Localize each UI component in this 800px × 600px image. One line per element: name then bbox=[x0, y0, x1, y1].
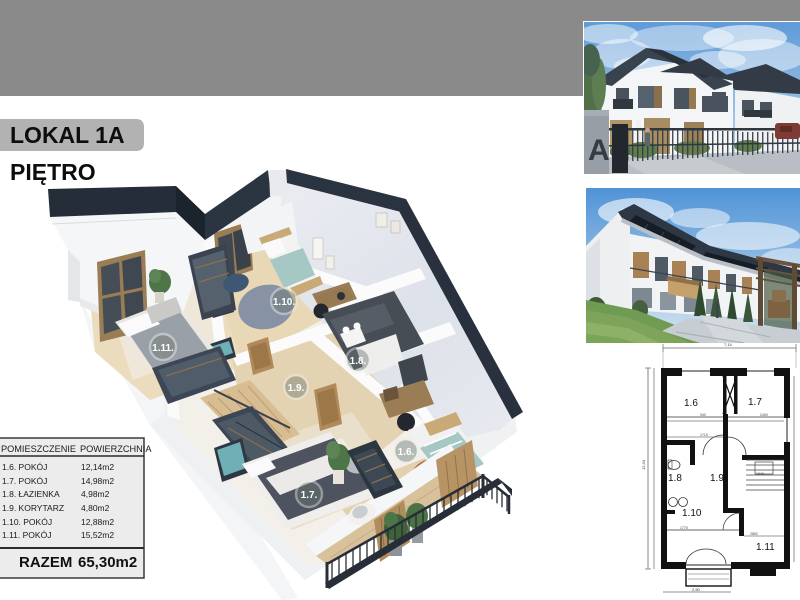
svg-text:1840: 1840 bbox=[756, 472, 764, 476]
svg-text:1.11: 1.11 bbox=[756, 542, 775, 553]
svg-text:1.9: 1.9 bbox=[710, 473, 724, 484]
svg-text:1.8.: 1.8. bbox=[350, 356, 367, 367]
svg-text:4,80m2: 4,80m2 bbox=[81, 503, 110, 513]
svg-text:1.6. POKÓJ: 1.6. POKÓJ bbox=[2, 462, 47, 472]
svg-text:12,14m2: 12,14m2 bbox=[81, 462, 114, 472]
svg-text:1.9.: 1.9. bbox=[288, 383, 305, 394]
svg-text:A: A bbox=[588, 134, 610, 167]
svg-text:1.11. POKÓJ: 1.11. POKÓJ bbox=[2, 530, 51, 540]
svg-text:1.10. POKÓJ: 1.10. POKÓJ bbox=[2, 517, 52, 527]
svg-text:65,30m2: 65,30m2 bbox=[78, 554, 137, 571]
svg-text:1.6.: 1.6. bbox=[398, 447, 415, 458]
svg-text:1.7. POKÓJ: 1.7. POKÓJ bbox=[2, 476, 47, 486]
svg-text:12,34: 12,34 bbox=[641, 459, 646, 470]
svg-text:1.9. KORYTARZ: 1.9. KORYTARZ bbox=[2, 503, 64, 513]
svg-text:1.7.: 1.7. bbox=[301, 490, 318, 501]
svg-text:2400: 2400 bbox=[760, 413, 768, 417]
svg-text:15,52m2: 15,52m2 bbox=[81, 530, 114, 540]
svg-text:14,98m2: 14,98m2 bbox=[81, 476, 114, 486]
svg-text:RAZEM: RAZEM bbox=[19, 554, 72, 571]
svg-text:1.11.: 1.11. bbox=[152, 343, 174, 354]
svg-text:7,14: 7,14 bbox=[724, 342, 733, 347]
svg-text:940: 940 bbox=[700, 413, 706, 417]
svg-text:1.8. ŁAZIENKA: 1.8. ŁAZIENKA bbox=[2, 489, 60, 499]
svg-text:1.10.: 1.10. bbox=[273, 297, 295, 308]
svg-text:1.10: 1.10 bbox=[682, 508, 702, 519]
svg-text:2852: 2852 bbox=[750, 532, 758, 536]
svg-text:POWIERZCHNIA: POWIERZCHNIA bbox=[80, 444, 152, 454]
svg-text:POMIESZCZENIE: POMIESZCZENIE bbox=[1, 444, 76, 454]
svg-text:12,88m2: 12,88m2 bbox=[81, 517, 114, 527]
svg-text:2,50: 2,50 bbox=[692, 587, 701, 592]
svg-text:4,98m2: 4,98m2 bbox=[81, 489, 110, 499]
svg-text:1710: 1710 bbox=[700, 433, 708, 437]
svg-text:1.7: 1.7 bbox=[748, 397, 762, 408]
svg-text:PIĘTRO: PIĘTRO bbox=[10, 159, 96, 185]
svg-text:1770: 1770 bbox=[680, 526, 688, 530]
svg-text:1.8: 1.8 bbox=[668, 473, 682, 484]
svg-text:LOKAL 1A: LOKAL 1A bbox=[10, 122, 125, 148]
svg-text:1.6: 1.6 bbox=[684, 398, 698, 409]
